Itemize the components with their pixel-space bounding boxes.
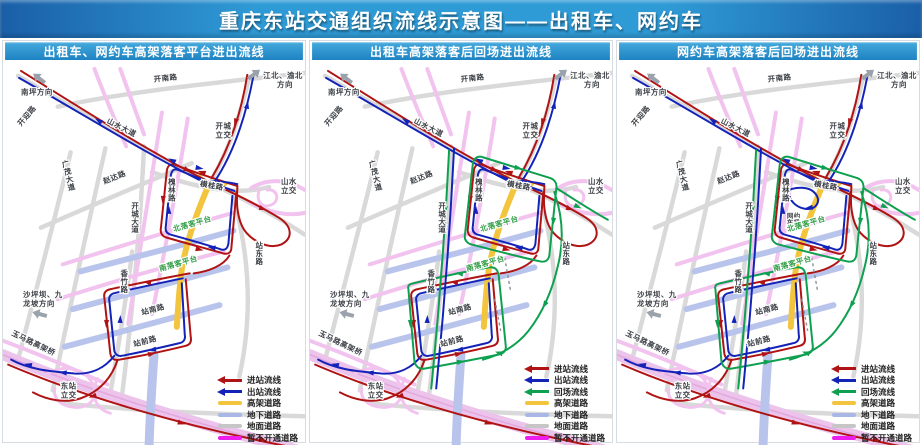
- underground-road-swatch: [210, 413, 242, 417]
- panel-title: 出租车、网约车高架落客平台进出流线: [5, 42, 303, 60]
- legend-label: 回场流线: [861, 386, 895, 398]
- legend-item-ground: 地面道路: [517, 421, 605, 432]
- underground-road-swatch: [517, 413, 549, 417]
- panel-title: 出租车高架落客后回场进出流线: [312, 42, 610, 60]
- legend-label: 地面道路: [554, 420, 588, 432]
- legend-item-elevated: 高架道路: [210, 398, 298, 409]
- legend-label: 暂不开通道路: [861, 432, 912, 444]
- legend-label: 进站流线: [554, 363, 588, 375]
- legend-item-underground: 地下道路: [824, 410, 912, 421]
- map-area: 进站流线 出站流线 高架道路 地下道路 地面道路 暂不开通道路: [3, 61, 305, 445]
- legend-item-underground: 地下道路: [517, 410, 605, 421]
- legend-item-underground: 地下道路: [210, 410, 298, 421]
- exit-arrow-icon: [210, 388, 242, 396]
- ground-road-swatch: [210, 424, 242, 428]
- enter-arrow-icon: [824, 365, 856, 373]
- legend-label: 出站流线: [554, 374, 588, 386]
- legend-item-closed: 暂不开通道路: [824, 433, 912, 444]
- exit-arrow-icon: [824, 376, 856, 384]
- legend-item-elevated: 高架道路: [824, 398, 912, 409]
- legend-label: 回场流线: [554, 386, 588, 398]
- legend-item-enter: 进站流线: [517, 364, 605, 375]
- legend-item-return: 回场流线: [517, 387, 605, 398]
- underground-road-swatch: [824, 413, 856, 417]
- panel-platform-inout: 出租车、网约车高架落客平台进出流线 进站流线 出站流线 高架道路 地下道路 地面…: [2, 40, 306, 443]
- legend-label: 高架道路: [247, 397, 281, 409]
- elevated-road-swatch: [824, 401, 856, 405]
- closed-road-swatch: [824, 436, 856, 440]
- legend-label: 地下道路: [554, 409, 588, 421]
- ground-road-swatch: [824, 424, 856, 428]
- enter-arrow-icon: [210, 376, 242, 384]
- closed-road-swatch: [210, 436, 242, 440]
- legend-item-closed: 暂不开通道路: [210, 433, 298, 444]
- legend-label: 进站流线: [247, 374, 281, 386]
- legend-item-closed: 暂不开通道路: [517, 433, 605, 444]
- legend-item-ground: 地面道路: [824, 421, 912, 432]
- legend-label: 地面道路: [861, 420, 895, 432]
- exit-arrow-icon: [517, 376, 549, 384]
- legend-label: 地下道路: [861, 409, 895, 421]
- map-area: 进站流线 出站流线 回场流线 高架道路 地下道路 地面道路 暂不开通道路: [617, 61, 919, 445]
- return-arrow-icon: [517, 388, 549, 396]
- legend-label: 高架道路: [554, 397, 588, 409]
- ground-road-swatch: [517, 424, 549, 428]
- legend-item-enter: 进站流线: [210, 375, 298, 386]
- closed-road-swatch: [517, 436, 549, 440]
- elevated-road-swatch: [210, 401, 242, 405]
- legend-item-return: 回场流线: [824, 387, 912, 398]
- legend: 进站流线 出站流线 回场流线 高架道路 地下道路 地面道路 暂不开通道路: [517, 364, 605, 444]
- legend-label: 暂不开通道路: [554, 432, 605, 444]
- legend-label: 地面道路: [247, 420, 281, 432]
- legend-item-exit: 出站流线: [517, 375, 605, 386]
- header-bar: 重庆东站交通组织流线示意图——出租车、网约车: [0, 0, 922, 38]
- legend-item-enter: 进站流线: [824, 364, 912, 375]
- panel-row: 出租车、网约车高架落客平台进出流线 进站流线 出站流线 高架道路 地下道路 地面…: [0, 38, 922, 445]
- map-area: 进站流线 出站流线 回场流线 高架道路 地下道路 地面道路 暂不开通道路: [310, 61, 612, 445]
- legend: 进站流线 出站流线 回场流线 高架道路 地下道路 地面道路 暂不开通道路: [824, 364, 912, 444]
- panel-ridehailing-return: 网约车高架落客后回场进出流线 进站流线 出站流线 回场流线 高架道路 地下道路 …: [616, 40, 920, 443]
- enter-arrow-icon: [517, 365, 549, 373]
- legend-label: 进站流线: [861, 363, 895, 375]
- elevated-road-swatch: [517, 401, 549, 405]
- panel-taxi-return: 出租车高架落客后回场进出流线 进站流线 出站流线 回场流线 高架道路 地下道路 …: [309, 40, 613, 443]
- legend-item-ground: 地面道路: [210, 421, 298, 432]
- legend-label: 暂不开通道路: [247, 432, 298, 444]
- legend-label: 高架道路: [861, 397, 895, 409]
- return-arrow-icon: [824, 388, 856, 396]
- legend-item-elevated: 高架道路: [517, 398, 605, 409]
- main-title: 重庆东站交通组织流线示意图——出租车、网约车: [219, 5, 703, 34]
- legend-item-exit: 出站流线: [210, 387, 298, 398]
- legend-label: 出站流线: [247, 386, 281, 398]
- infographic-root: 网约 车场 南坪方向 江北、渝北 方向 开南路 山水大道 开城 立交 开迎路 广…: [0, 0, 922, 445]
- legend-label: 出站流线: [861, 374, 895, 386]
- legend-item-exit: 出站流线: [824, 375, 912, 386]
- panel-title: 网约车高架落客后回场进出流线: [619, 42, 917, 60]
- legend-label: 地下道路: [247, 409, 281, 421]
- legend: 进站流线 出站流线 高架道路 地下道路 地面道路 暂不开通道路: [210, 375, 298, 443]
